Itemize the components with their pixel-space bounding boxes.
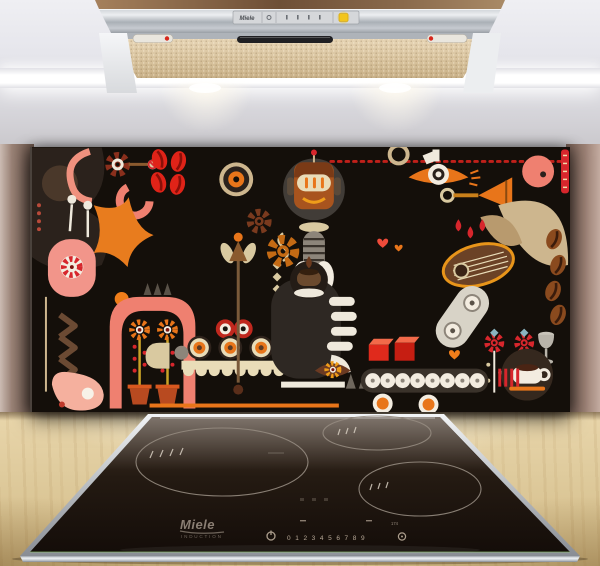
induction-hob: Miele INDUCTION 174 0 1 2 3 4 5 6 7 8 9	[0, 400, 600, 566]
hood-fan-level-3-button[interactable]	[308, 15, 310, 20]
side-wall-left	[0, 144, 34, 414]
timer-display: 174	[391, 521, 399, 526]
hood-lamp-right	[379, 83, 411, 93]
pink-blob-flower	[48, 239, 96, 297]
splashback-artwork	[32, 147, 570, 412]
cabinet-strip	[95, 0, 505, 9]
hood-fan-level-4-button[interactable]	[319, 15, 321, 20]
glass-splashback	[30, 147, 570, 412]
filter-indicator-left	[165, 36, 169, 40]
hob-series-label: INDUCTION	[181, 534, 223, 539]
hood-fan-level-1-button[interactable]	[286, 15, 288, 20]
hob-front-edge	[20, 556, 580, 562]
hob-brand-label: Miele	[180, 517, 215, 532]
hood-control-strip[interactable]: Miele	[233, 11, 359, 24]
side-wall-right	[566, 144, 600, 414]
filter-indicator-right	[429, 36, 433, 40]
hood-lamp-left	[189, 83, 221, 93]
pink-disc	[522, 155, 554, 187]
hood-fan-level-2-button[interactable]	[297, 15, 299, 20]
power-digit-scale[interactable]: 0 1 2 3 4 5 6 7 8 9	[287, 535, 366, 542]
kitchen-scene: Miele	[0, 0, 600, 566]
hood-light-indicator[interactable]	[339, 14, 348, 22]
extractor-hood: Miele	[0, 0, 600, 96]
hood-brand-label: Miele	[239, 16, 255, 22]
